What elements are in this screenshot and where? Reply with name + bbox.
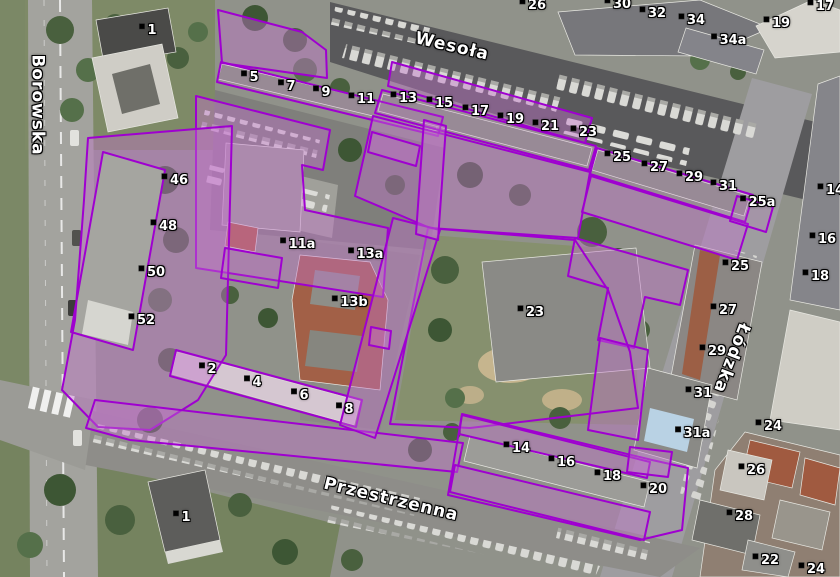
parcel-polygon bbox=[588, 338, 648, 440]
parcel-polygon bbox=[369, 327, 391, 349]
parcel-polygon bbox=[627, 447, 672, 477]
aerial-imagery bbox=[0, 0, 840, 577]
map-canvas[interactable]: 1579111315171921232527293125a4648505211a… bbox=[0, 0, 840, 577]
